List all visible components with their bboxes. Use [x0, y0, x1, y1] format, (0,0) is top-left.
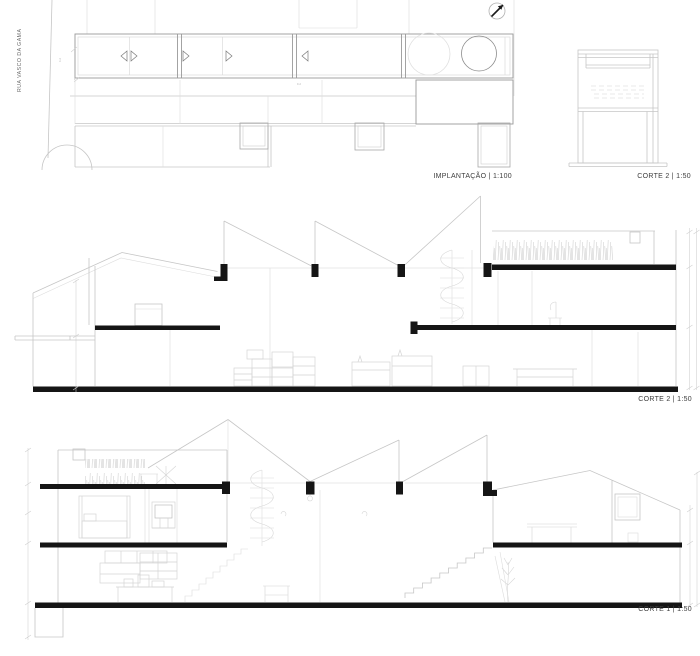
bedroom-furniture — [79, 496, 175, 538]
street-curb-arc — [42, 145, 92, 170]
crates — [234, 350, 315, 386]
tree-canopy-light — [408, 33, 450, 75]
site-plan-drawing: 9.2 4.2 RUA VASCO DA GAMA IMPLANTAÇÃO | … — [17, 0, 514, 180]
table — [527, 524, 577, 543]
roof-terrace-grass — [85, 459, 145, 484]
spiral-stair — [440, 250, 472, 325]
living-furniture — [100, 551, 177, 602]
site-plan-label: IMPLANTAÇÃO | 1:100 — [433, 171, 512, 180]
stair-main — [405, 548, 492, 598]
north-arrow-icon — [489, 3, 505, 19]
drawing-sheet: 9.2 4.2 RUA VASCO DA GAMA IMPLANTAÇÃO | … — [0, 0, 700, 656]
green-roof-grass — [493, 240, 613, 265]
drawing-canvas: 9.2 4.2 RUA VASCO DA GAMA IMPLANTAÇÃO | … — [0, 0, 700, 656]
skylights — [240, 123, 510, 167]
plan-dim-note-a: 9.2 — [297, 82, 302, 86]
corte1-section-label: CORTE 1 | 1:50 — [638, 606, 692, 613]
spiral-stair-corte1 — [250, 470, 274, 546]
corte2-section-label: CORTE 2 | 1:50 — [638, 396, 692, 403]
stair-secondary — [185, 549, 248, 602]
tree-canopy-dark — [462, 36, 497, 71]
corte1-section-drawing: CORTE 1 | 1:50 — [25, 420, 700, 641]
street-name-label: RUA VASCO DA GAMA — [17, 28, 23, 92]
chair — [548, 302, 562, 325]
street-line — [48, 0, 52, 158]
plan-dim-note-b: 4.2 — [58, 58, 62, 63]
corte2-section-drawing: CORTE 2 | 1:50 — [15, 196, 700, 403]
door-swing-icons — [121, 51, 308, 61]
corte2-small-drawing: CORTE 2 | 1:50 — [569, 50, 691, 180]
wall-hooks — [281, 512, 367, 516]
rotary-dryer — [156, 466, 176, 485]
furniture — [352, 350, 577, 386]
corte2-small-label: CORTE 2 | 1:50 — [637, 173, 691, 180]
